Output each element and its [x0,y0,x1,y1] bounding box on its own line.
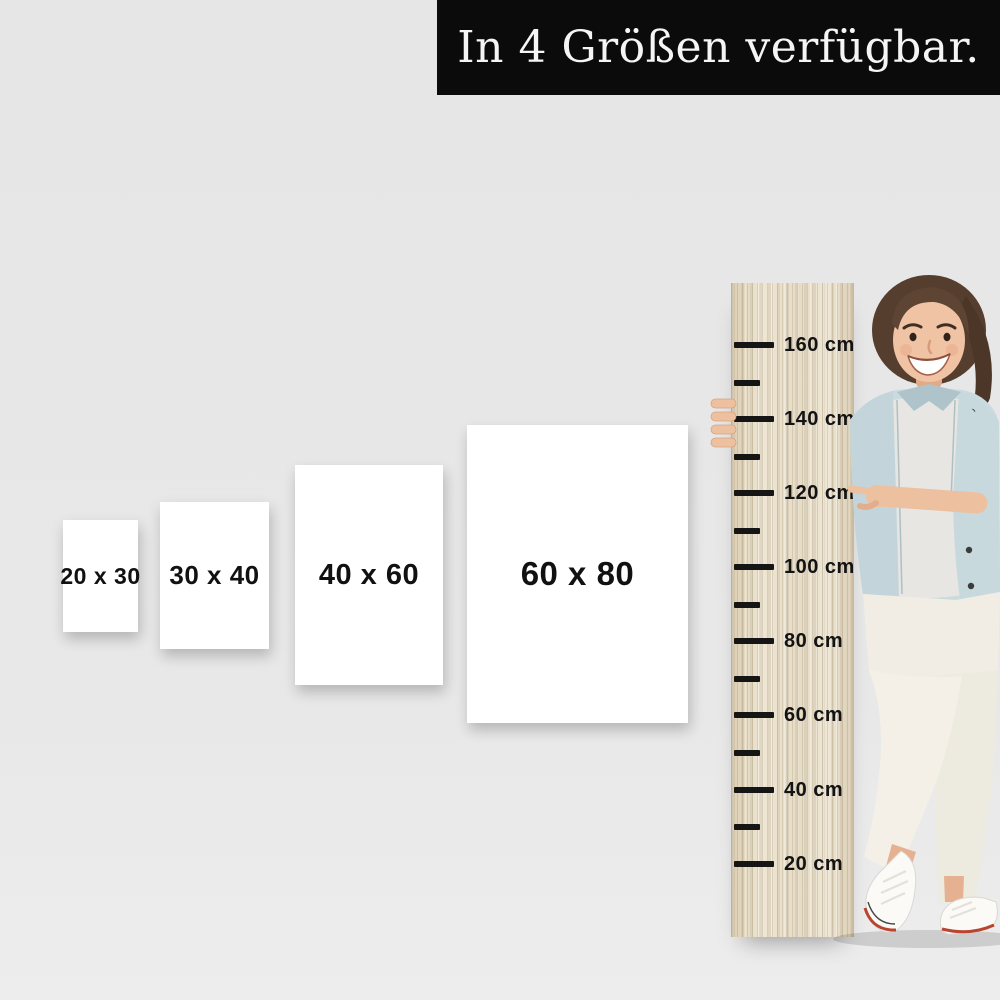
size-label: 30 x 40 [169,560,259,591]
jacket-button [966,547,972,553]
grip-finger [711,438,736,447]
availability-banner: In 4 Größen verfügbar. [437,0,1000,95]
sneaker-crossed [866,851,916,932]
forearm [880,496,977,503]
ankle-standing [944,876,964,902]
grip-fingers [711,399,736,447]
pointing-finger [851,489,875,492]
blush-left [900,344,912,356]
size-label: 40 x 60 [319,559,419,592]
size-card-60x80: 60 x 80 [467,425,688,723]
jacket-button [968,583,974,589]
page-background: In 4 Größen verfügbar. 20 x 30 30 x 40 4… [0,0,1000,1000]
banner-text: In 4 Größen verfügbar. [457,22,979,73]
eye-right [944,333,951,341]
pants-hip [863,592,1000,684]
grip-finger [711,425,736,434]
grip-finger [711,399,736,408]
size-card-30x40: 30 x 40 [160,502,269,649]
size-card-20x30: 20 x 30 [63,520,138,632]
grip-finger [711,412,736,421]
size-label: 20 x 30 [60,563,140,590]
size-label: 60 x 80 [521,555,635,593]
size-card-40x60: 40 x 60 [295,465,443,685]
eye-left [910,333,917,341]
feet-shadow [833,930,1000,948]
person-illustration [700,250,1000,960]
